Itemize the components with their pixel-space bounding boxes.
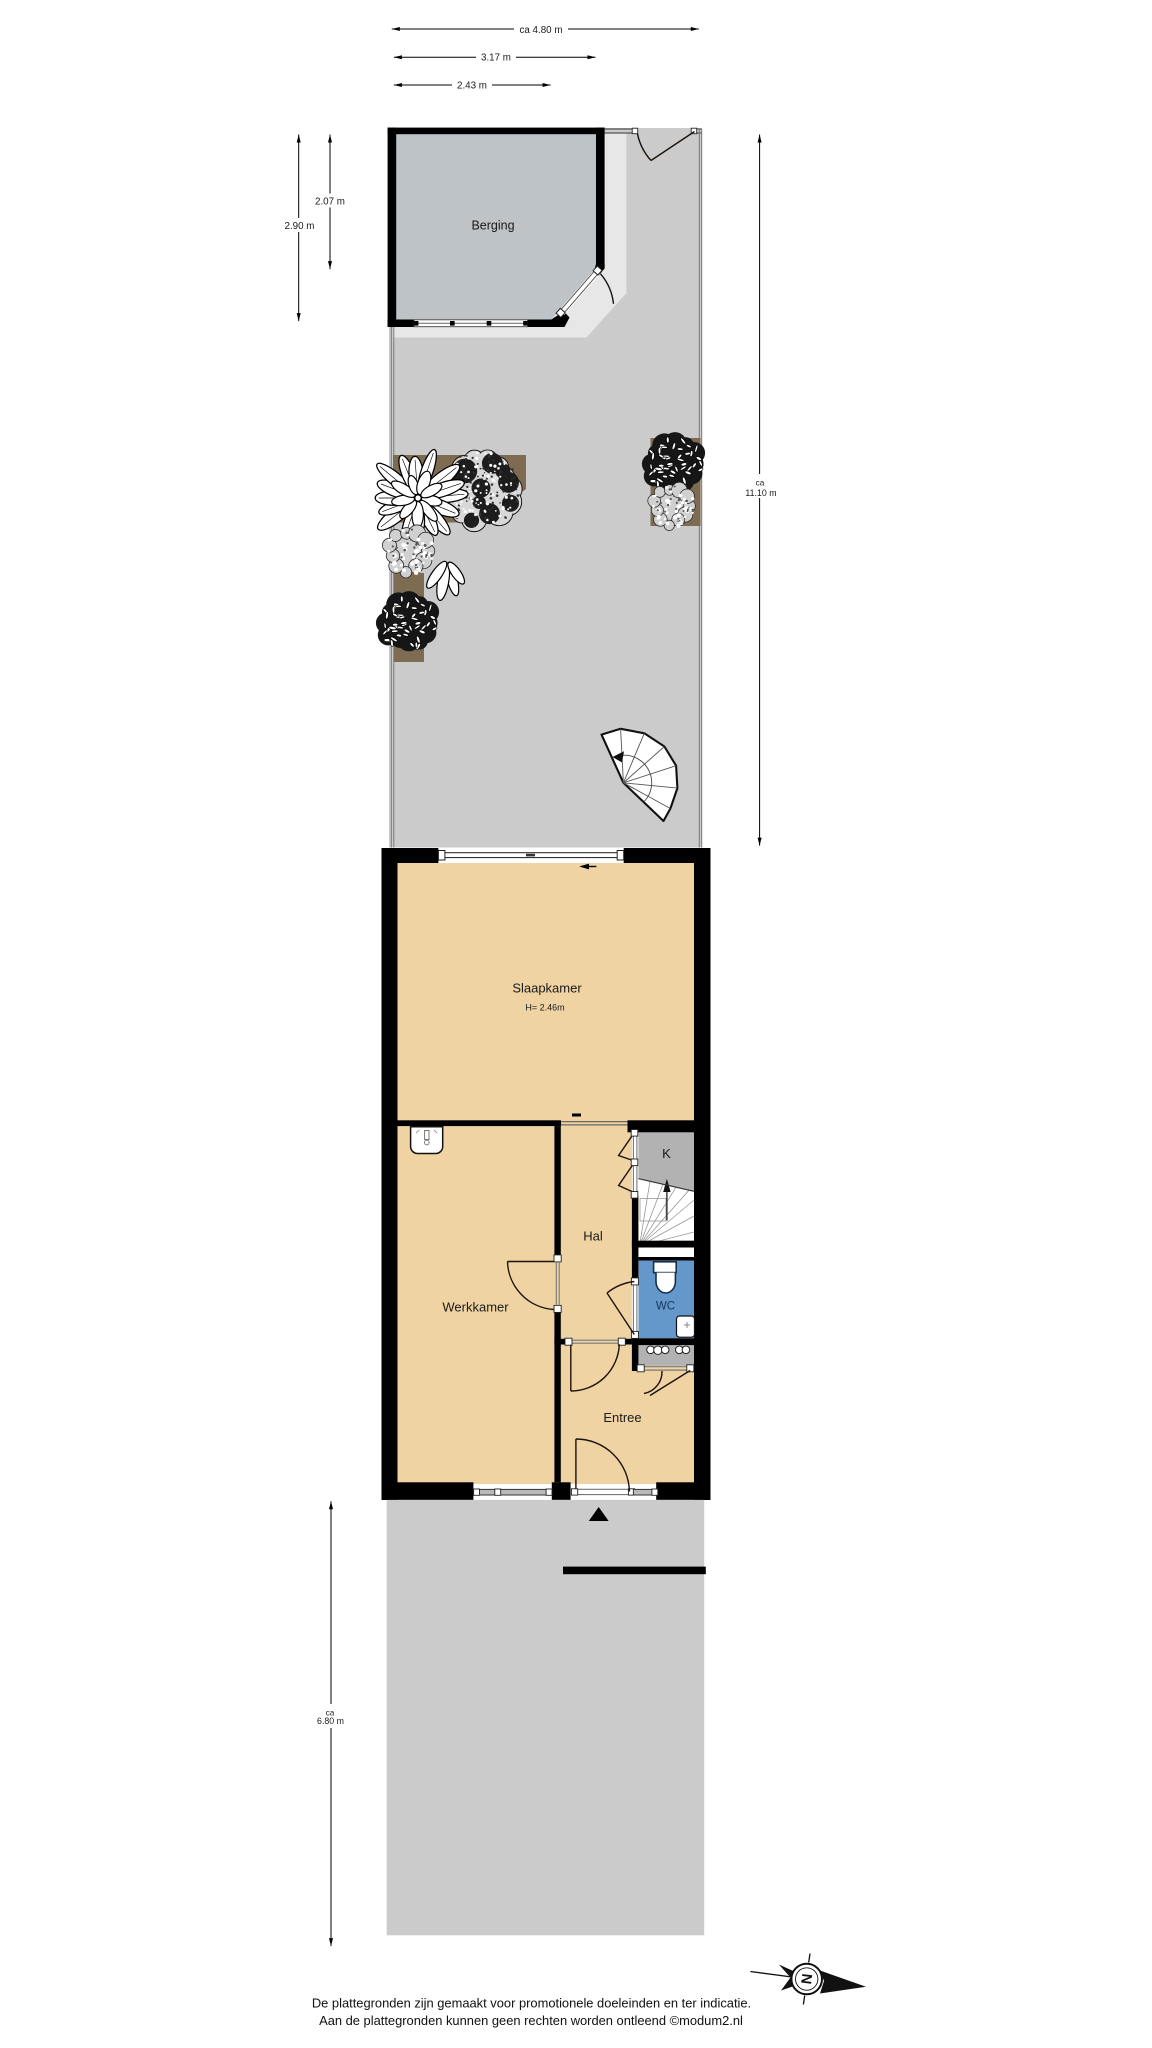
svg-text:De plattegronden zijn gemaakt: De plattegronden zijn gemaakt voor promo… [312,1996,751,2011]
svg-text:Slaapkamer: Slaapkamer [512,981,582,996]
svg-text:N: N [797,1973,814,1985]
svg-text:Entree: Entree [603,1410,641,1425]
svg-text:11.10 m: 11.10 m [745,488,776,498]
svg-text:WC: WC [656,1301,675,1313]
svg-text:Werkkamer: Werkkamer [442,1300,509,1315]
svg-text:H= 2.46m: H= 2.46m [525,1003,564,1013]
svg-text:2.90 m: 2.90 m [285,221,315,232]
svg-text:Aan de plattegronden kunnen ge: Aan de plattegronden kunnen geen rechten… [319,2013,743,2028]
svg-text:Hal: Hal [583,1229,603,1244]
svg-text:K: K [662,1146,671,1161]
svg-text:ca: ca [756,479,765,488]
svg-text:2.43 m: 2.43 m [457,81,487,92]
svg-text:ca 4.80 m: ca 4.80 m [519,25,562,36]
svg-text:2.07 m: 2.07 m [315,196,345,207]
svg-text:Berging: Berging [471,219,514,233]
svg-text:6.80 m: 6.80 m [317,1716,344,1726]
svg-text:3.17 m: 3.17 m [481,53,511,64]
